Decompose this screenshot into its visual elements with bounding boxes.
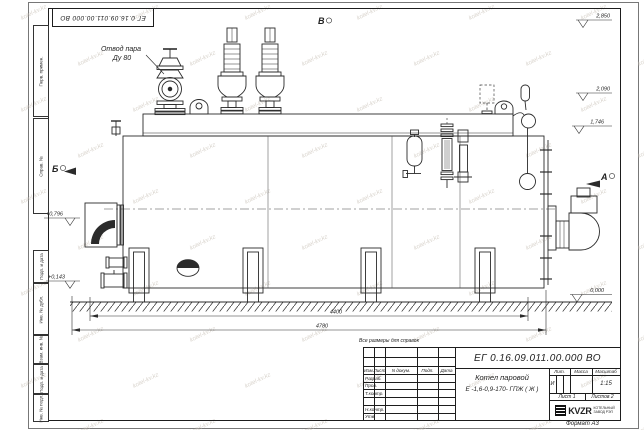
margin-box-perv-primen: Перв. примен. [33,25,49,117]
steam-outlet-valve [155,49,185,115]
rear-wall-flange [540,140,552,285]
company-name-line2: ЗАВОД РЭП [594,410,613,414]
margin-label: Инв. № подл. [39,394,44,422]
col-list: Лист [374,366,385,374]
manhole [177,260,199,277]
lit-value: И [549,375,556,393]
dimension-lines [72,290,546,335]
view-arrows [60,18,614,188]
elevation-0000: 0,000 [590,288,605,294]
margin-box-podp-data-2: Подп. и дата [33,364,49,394]
sheets-total: Листов 2 [585,393,620,400]
margin-label: Справ. № [39,156,44,176]
flue-gas-box [85,203,124,247]
sheet-number: Лист 1 [549,393,585,400]
boiler-side-view [44,18,615,335]
lit-header: Лит. [549,368,570,375]
elevation-2090: 2,090 [595,87,611,93]
row-tkontr: Т.контр. [364,389,386,397]
row-nkontr: Н.контр. [364,405,386,413]
company-logo-icon [555,405,566,416]
margin-box-podp-data-1: Подп. и дата [33,250,49,283]
scale-header: Масштаб [592,368,620,375]
row-razrab: Разраб. [364,374,386,382]
format-label: Формат А3 [566,421,599,427]
separator-vessel [403,130,422,178]
water-gauge-column-2 [454,130,472,182]
top-left-valve [111,121,121,136]
safety-valve-1 [218,28,246,114]
dim-4400: 4400 [330,310,343,316]
steam-outlet-label-line1: Отвод пара [101,45,141,53]
margin-label: Инв. № дубл. [39,295,44,323]
lifting-lug-left [190,100,208,115]
boiler-body [104,114,558,288]
margin-box-sprav-no: Справ. № [33,118,49,214]
view-label-v: В [318,16,325,26]
col-podp: Подп. [417,366,438,374]
margin-box-inv-dubl: Инв. № дубл. [33,283,49,335]
company-name: КОТЕЛЬНЫЙ ЗАВОД РЭП [594,407,615,415]
elevation-0143: +0,143 [48,275,66,281]
water-gauge-column-1 [441,118,453,188]
title-doc-number: ЕГ 0.16.09.011.00.000 ВО [455,348,620,368]
steam-outlet-label-line2: Ду 80 [112,55,131,62]
elevation-1746: 1,746 [590,120,605,126]
row-prov: Пров. [364,382,386,389]
safety-valve-2 [256,28,284,114]
product-model: Е -1,6-0,9-170- ГПЖ ( Ж ) [455,383,549,395]
dim-4780: 4780 [316,324,329,330]
corner-doc-number: ЕГ 0.16.09.011.00.000 ВО [60,14,146,21]
scale-value: 1:15 [592,375,620,393]
mass-header: Масса [570,368,592,375]
elevation-2850: 2,850 [595,14,611,20]
col-doc: N докум. [385,366,417,374]
view-label-a: А [600,172,608,182]
burner [548,188,600,250]
lifting-lug-right [495,101,513,114]
product-title: Котел паровой [455,371,549,383]
margin-label: Подп. и дата [39,253,44,280]
steam-outlet-leader [146,55,164,74]
margin-box-vzam-inv: Взам. инв. № [33,335,49,364]
corner-doc-number-stamp: ЕГ 0.16.09.011.00.000 ВО [52,8,154,27]
drum-top-fittings [480,85,536,190]
row-utv: Утв. [364,413,386,420]
title-block: ЕГ 0.16.09.011.00.000 ВО Изм. Лист N док… [363,347,621,421]
margin-box-inv-podl: Инв. № подл. [33,394,49,422]
margin-label: Взам. инв. № [39,336,44,364]
col-data: Дата [438,366,455,374]
company-logo-text: KVZR [568,406,591,416]
margin-label: Перв. примен. [39,56,44,86]
reference-note: Все размеры для справок [359,338,420,344]
company-block: KVZR КОТЕЛЬНЫЙ ЗАВОД РЭП [550,401,620,420]
col-izm: Изм. [364,366,374,374]
margin-label: Подп. и дата [39,366,44,393]
view-label-b: Б [52,164,59,174]
support-legs [129,248,495,302]
